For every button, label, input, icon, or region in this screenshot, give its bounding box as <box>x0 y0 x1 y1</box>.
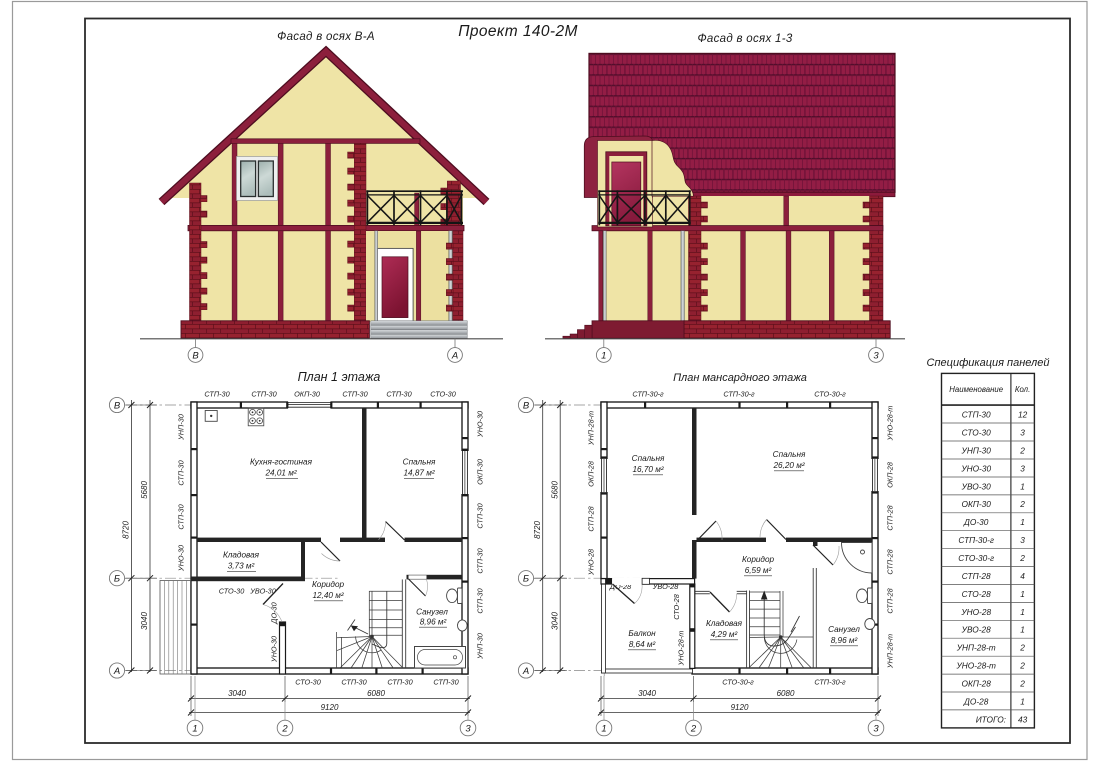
svg-text:Б: Б <box>523 574 529 585</box>
svg-text:2: 2 <box>281 723 288 734</box>
svg-text:1: 1 <box>1020 625 1025 635</box>
svg-text:3: 3 <box>873 350 879 361</box>
svg-text:ОКП-28: ОКП-28 <box>587 460 596 487</box>
svg-text:СТО-30: СТО-30 <box>295 678 321 687</box>
svg-text:УНО-28: УНО-28 <box>960 607 991 617</box>
svg-text:СТП-30: СТП-30 <box>386 390 411 399</box>
svg-text:СТП-30-г: СТП-30-г <box>723 390 755 399</box>
svg-text:СТП-30: СТП-30 <box>341 678 366 687</box>
svg-text:СТП-28: СТП-28 <box>962 571 991 581</box>
svg-text:5680: 5680 <box>140 481 149 499</box>
svg-text:3040: 3040 <box>638 689 656 698</box>
svg-text:1: 1 <box>1020 696 1025 706</box>
svg-text:УНП-30: УНП-30 <box>961 445 992 455</box>
svg-text:1: 1 <box>1020 517 1025 527</box>
svg-text:А: А <box>113 666 120 677</box>
svg-text:2: 2 <box>1019 643 1025 653</box>
svg-text:ИТОГО:: ИТОГО: <box>976 714 1006 724</box>
svg-text:УВО-30: УВО-30 <box>249 587 276 596</box>
svg-text:3040: 3040 <box>140 612 149 630</box>
svg-text:8,96 м²: 8,96 м² <box>831 636 858 645</box>
svg-text:УНО-28-т: УНО-28-т <box>955 661 996 671</box>
svg-text:СТП-30: СТП-30 <box>177 504 186 529</box>
svg-text:12,40 м²: 12,40 м² <box>312 591 343 600</box>
svg-text:СТП-30: СТП-30 <box>342 390 367 399</box>
svg-text:Наименование: Наименование <box>949 385 1003 394</box>
svg-text:СТО-30: СТО-30 <box>430 390 456 399</box>
svg-text:Балкон: Балкон <box>628 629 656 638</box>
svg-text:3: 3 <box>873 723 879 734</box>
svg-text:А: А <box>451 350 458 361</box>
svg-text:43: 43 <box>1018 714 1028 724</box>
svg-text:2: 2 <box>1019 445 1025 455</box>
svg-text:Кладовая: Кладовая <box>223 551 260 560</box>
svg-text:СТП-28: СТП-28 <box>886 548 895 574</box>
svg-text:СТО-30-г: СТО-30-г <box>958 553 994 563</box>
svg-text:Б: Б <box>114 574 120 585</box>
svg-text:СТО-30-г: СТО-30-г <box>722 678 754 687</box>
svg-text:УВО-30: УВО-30 <box>961 481 991 491</box>
svg-text:3: 3 <box>1020 535 1025 545</box>
svg-text:Спальня: Спальня <box>403 458 436 467</box>
svg-text:ОКП-30: ОКП-30 <box>294 390 320 399</box>
svg-text:Спальня: Спальня <box>632 454 665 463</box>
svg-text:УНП-30: УНП-30 <box>177 414 186 441</box>
svg-text:4,29 м²: 4,29 м² <box>711 630 738 639</box>
svg-text:3,73 м²: 3,73 м² <box>228 562 255 571</box>
svg-text:1: 1 <box>192 723 197 734</box>
svg-text:СТО-30-г: СТО-30-г <box>814 390 846 399</box>
svg-text:УНО-28-т: УНО-28-т <box>677 631 686 667</box>
svg-text:В: В <box>192 350 199 361</box>
svg-text:2: 2 <box>690 723 697 734</box>
svg-text:Кол.: Кол. <box>1015 385 1030 394</box>
svg-text:СТП-30: СТП-30 <box>204 390 229 399</box>
svg-text:УНО-30: УНО-30 <box>476 411 485 438</box>
svg-text:СТП-28: СТП-28 <box>886 504 895 530</box>
svg-text:СТП-30: СТП-30 <box>476 503 485 528</box>
svg-text:1: 1 <box>1020 607 1025 617</box>
svg-text:СТО-28: СТО-28 <box>962 589 991 599</box>
svg-text:8,64 м²: 8,64 м² <box>629 640 656 649</box>
svg-text:УНО-28: УНО-28 <box>587 548 596 576</box>
svg-text:СТП-30: СТП-30 <box>433 678 458 687</box>
svg-text:8720: 8720 <box>533 521 542 539</box>
svg-text:План мансардного этажа: План мансардного этажа <box>673 372 807 384</box>
svg-text:3040: 3040 <box>228 689 246 698</box>
svg-text:План 1 этажа: План 1 этажа <box>298 370 381 384</box>
svg-text:СТП-30: СТП-30 <box>251 390 276 399</box>
svg-text:УНО-28-т: УНО-28-т <box>886 406 895 442</box>
svg-text:1: 1 <box>601 350 606 361</box>
svg-text:6,59 м²: 6,59 м² <box>745 566 772 575</box>
svg-text:2: 2 <box>1019 679 1025 689</box>
svg-text:УНП-28-т: УНП-28-т <box>886 634 895 669</box>
svg-text:СТП-30: СТП-30 <box>962 410 991 420</box>
svg-text:СТП-30: СТП-30 <box>476 588 485 613</box>
svg-text:ОКП-30: ОКП-30 <box>476 459 485 485</box>
svg-text:СТП-30-г: СТП-30-г <box>958 535 994 545</box>
svg-text:9120: 9120 <box>321 703 339 712</box>
svg-text:Проект 140-2М: Проект 140-2М <box>458 23 578 40</box>
svg-text:СТП-28: СТП-28 <box>886 587 895 613</box>
svg-text:СТП-30-г: СТП-30-г <box>814 678 846 687</box>
svg-text:ОКП-28: ОКП-28 <box>886 461 895 488</box>
svg-text:Кладовая: Кладовая <box>706 619 743 628</box>
svg-text:Фасад в осях В-А: Фасад в осях В-А <box>277 31 375 43</box>
svg-text:4: 4 <box>1020 571 1025 581</box>
svg-text:ДО-28: ДО-28 <box>963 696 989 706</box>
svg-text:16,70 м²: 16,70 м² <box>632 465 663 474</box>
svg-text:2: 2 <box>1019 499 1025 509</box>
svg-text:Санузел: Санузел <box>828 625 860 634</box>
svg-text:ОКП-28: ОКП-28 <box>962 679 992 689</box>
svg-text:Спецификация панелей: Спецификация панелей <box>927 357 1050 369</box>
svg-text:8,96 м²: 8,96 м² <box>420 618 447 627</box>
svg-text:3040: 3040 <box>550 612 559 630</box>
svg-text:СТО-28: СТО-28 <box>672 593 681 619</box>
svg-text:СТП-30-г: СТП-30-г <box>632 390 664 399</box>
svg-text:Коридор: Коридор <box>742 555 775 564</box>
svg-text:14,87 м²: 14,87 м² <box>403 469 434 478</box>
svg-text:6080: 6080 <box>777 689 795 698</box>
svg-text:Фасад в осях 1-3: Фасад в осях 1-3 <box>697 33 792 45</box>
svg-text:2: 2 <box>1019 661 1025 671</box>
svg-text:СТП-30: СТП-30 <box>387 678 412 687</box>
svg-text:1: 1 <box>1020 481 1025 491</box>
svg-text:2: 2 <box>1019 553 1025 563</box>
svg-text:УНО-30: УНО-30 <box>270 636 279 663</box>
svg-text:Санузел: Санузел <box>416 608 448 617</box>
svg-text:СТО-30: СТО-30 <box>219 587 245 596</box>
svg-text:9120: 9120 <box>731 703 749 712</box>
svg-text:В: В <box>114 400 121 411</box>
svg-text:УНО-30: УНО-30 <box>960 463 991 473</box>
svg-text:ДО-30: ДО-30 <box>963 517 989 527</box>
svg-text:Кухня-гостиная: Кухня-гостиная <box>250 458 313 467</box>
svg-text:УНП-30: УНП-30 <box>476 633 485 660</box>
svg-text:А: А <box>522 666 529 677</box>
svg-text:УНП-28-т: УНП-28-т <box>956 643 996 653</box>
svg-text:СТП-30: СТП-30 <box>476 548 485 573</box>
svg-text:3: 3 <box>1020 428 1025 438</box>
svg-text:6080: 6080 <box>367 689 385 698</box>
svg-text:УНП-28-т: УНП-28-т <box>587 411 596 446</box>
svg-text:3: 3 <box>465 723 471 734</box>
svg-text:СТП-30: СТП-30 <box>177 460 186 485</box>
svg-text:УВО-28: УВО-28 <box>961 625 991 635</box>
svg-text:5680: 5680 <box>550 481 559 499</box>
svg-text:Коридор: Коридор <box>312 580 345 589</box>
svg-text:СТП-28: СТП-28 <box>587 505 596 531</box>
svg-text:УНО-30: УНО-30 <box>177 545 186 572</box>
svg-text:8720: 8720 <box>122 521 131 539</box>
svg-text:СТО-30: СТО-30 <box>962 428 991 438</box>
svg-text:26,20 м²: 26,20 м² <box>772 461 804 470</box>
svg-text:24,01 м²: 24,01 м² <box>264 469 296 478</box>
svg-text:ОКП-30: ОКП-30 <box>962 499 992 509</box>
svg-text:1: 1 <box>601 723 606 734</box>
svg-text:В: В <box>523 400 530 411</box>
svg-text:Спальня: Спальня <box>773 450 806 459</box>
svg-text:1: 1 <box>1020 589 1025 599</box>
svg-text:12: 12 <box>1018 410 1028 420</box>
svg-text:3: 3 <box>1020 463 1025 473</box>
